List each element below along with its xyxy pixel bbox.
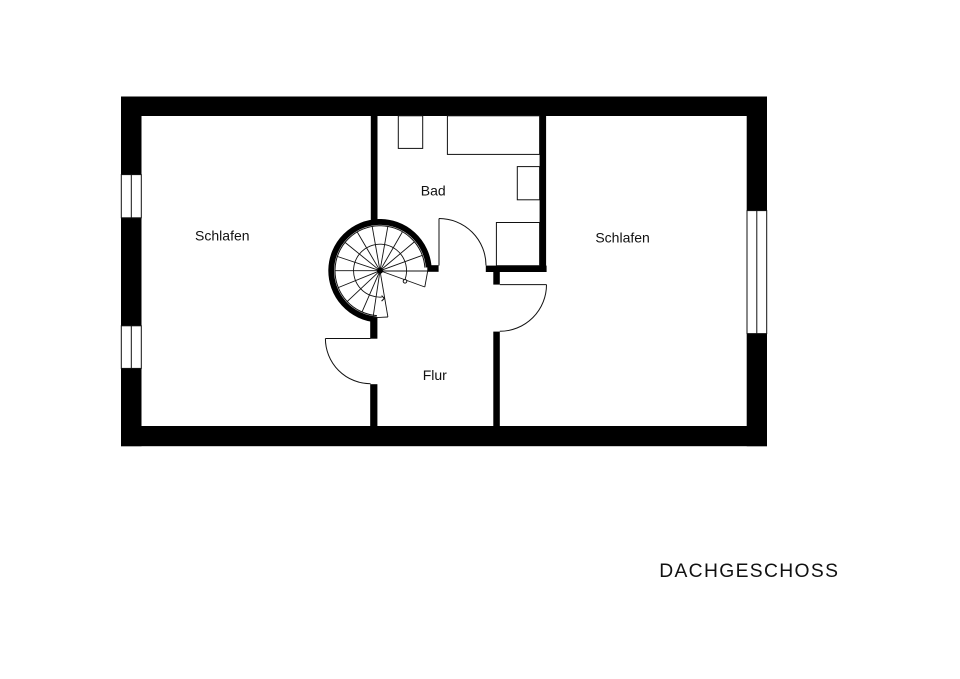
svg-text:Flur: Flur bbox=[423, 367, 447, 383]
svg-text:Bad: Bad bbox=[421, 182, 446, 198]
svg-text:DACHGESCHOSS: DACHGESCHOSS bbox=[659, 561, 839, 582]
svg-text:Schlafen: Schlafen bbox=[595, 229, 649, 245]
svg-text:Schlafen: Schlafen bbox=[195, 228, 249, 244]
